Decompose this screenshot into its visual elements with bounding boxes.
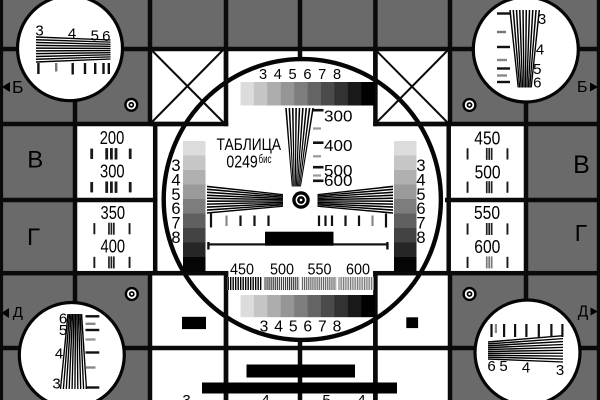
svg-text:8: 8 bbox=[333, 67, 341, 83]
svg-text:5: 5 bbox=[289, 67, 297, 83]
svg-text:450: 450 bbox=[474, 129, 500, 149]
svg-text:3: 3 bbox=[35, 23, 43, 40]
svg-text:5: 5 bbox=[322, 392, 330, 400]
svg-text:4: 4 bbox=[522, 359, 530, 376]
svg-text:300: 300 bbox=[324, 108, 353, 125]
svg-text:3: 3 bbox=[260, 318, 269, 335]
svg-text:600: 600 bbox=[324, 173, 353, 190]
svg-text:3: 3 bbox=[182, 392, 190, 400]
svg-text:6: 6 bbox=[102, 28, 110, 45]
svg-text:0249: 0249 bbox=[226, 152, 257, 172]
svg-text:Г: Г bbox=[27, 224, 40, 251]
svg-text:6: 6 bbox=[303, 67, 311, 83]
svg-text:5: 5 bbox=[59, 322, 67, 339]
svg-text:5: 5 bbox=[91, 28, 99, 45]
svg-text:4: 4 bbox=[274, 318, 283, 335]
svg-text:6: 6 bbox=[533, 75, 541, 92]
svg-text:550: 550 bbox=[474, 203, 500, 223]
svg-text:6: 6 bbox=[303, 318, 312, 335]
svg-text:6: 6 bbox=[487, 358, 495, 375]
svg-text:7: 7 bbox=[318, 318, 327, 335]
svg-text:5: 5 bbox=[499, 358, 507, 375]
svg-text:600: 600 bbox=[346, 261, 370, 278]
svg-text:4: 4 bbox=[55, 346, 63, 363]
svg-text:4: 4 bbox=[357, 392, 365, 400]
svg-text:300: 300 bbox=[100, 162, 125, 182]
svg-text:4: 4 bbox=[536, 42, 544, 59]
svg-text:350: 350 bbox=[101, 203, 126, 223]
svg-text:550: 550 bbox=[308, 261, 332, 278]
svg-text:Б: Б bbox=[577, 79, 588, 96]
svg-text:400: 400 bbox=[101, 237, 126, 257]
svg-text:В: В bbox=[27, 147, 43, 174]
svg-text:500: 500 bbox=[270, 261, 294, 278]
svg-text:7: 7 bbox=[318, 67, 326, 83]
svg-text:В: В bbox=[573, 151, 590, 179]
svg-text:200: 200 bbox=[100, 128, 125, 148]
svg-text:450: 450 bbox=[230, 261, 254, 278]
svg-text:8: 8 bbox=[171, 229, 180, 247]
svg-text:4: 4 bbox=[68, 26, 76, 43]
svg-text:400: 400 bbox=[324, 138, 353, 155]
svg-text:8: 8 bbox=[416, 229, 425, 247]
svg-text:500: 500 bbox=[475, 162, 501, 182]
svg-text:8: 8 bbox=[333, 318, 342, 335]
svg-text:3: 3 bbox=[259, 67, 267, 83]
svg-text:600: 600 bbox=[474, 237, 500, 257]
svg-text:Д: Д bbox=[578, 304, 589, 321]
svg-text:4: 4 bbox=[274, 67, 282, 83]
svg-text:5: 5 bbox=[289, 318, 298, 335]
svg-text:Г: Г bbox=[575, 220, 588, 246]
svg-text:Б: Б bbox=[12, 77, 23, 97]
svg-text:Д: Д bbox=[13, 304, 23, 321]
svg-text:4: 4 bbox=[261, 392, 269, 400]
svg-text:3: 3 bbox=[556, 362, 564, 379]
svg-text:3: 3 bbox=[538, 11, 546, 28]
svg-text:3: 3 bbox=[52, 376, 60, 393]
svg-text:бис: бис bbox=[259, 152, 272, 166]
